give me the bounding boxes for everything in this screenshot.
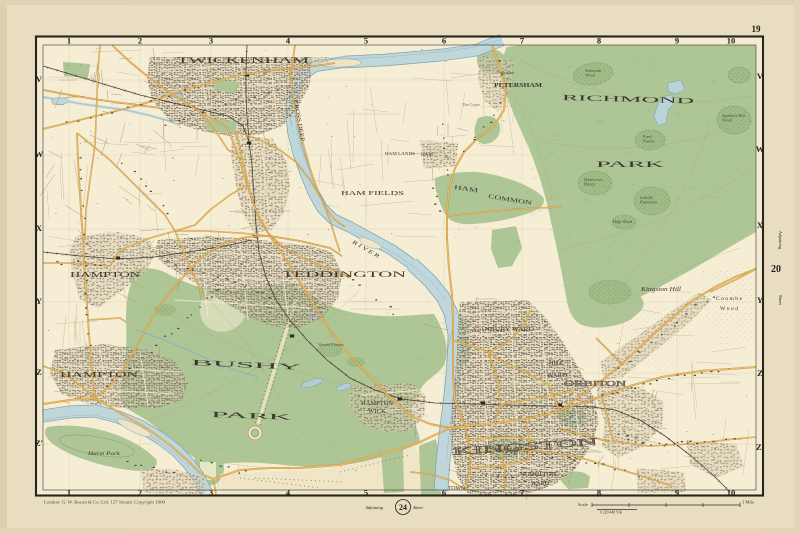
svg-text:Sheet: Sheet xyxy=(778,295,783,306)
svg-text:0 220 440 Yds: 0 220 440 Yds xyxy=(600,511,623,515)
svg-text:2: 2 xyxy=(138,36,142,46)
svg-text:Z: Z xyxy=(36,367,42,377)
svg-text:Z′: Z′ xyxy=(35,438,43,448)
svg-text:8: 8 xyxy=(597,36,601,46)
svg-text:6: 6 xyxy=(442,488,446,498)
svg-text:8: 8 xyxy=(597,488,601,498)
svg-text:X: X xyxy=(36,223,43,233)
svg-text:9: 9 xyxy=(675,36,679,46)
svg-text:5: 5 xyxy=(364,488,368,498)
svg-text:London: G. W. Bacon & Co. Ltd.: London: G. W. Bacon & Co. Ltd. 127 Stran… xyxy=(44,500,165,505)
svg-text:19: 19 xyxy=(752,24,762,34)
svg-text:Adjoining: Adjoining xyxy=(364,505,383,510)
svg-text:2: 2 xyxy=(138,488,142,498)
svg-text:5: 5 xyxy=(364,36,368,46)
svg-text:10: 10 xyxy=(727,488,736,498)
svg-text:20: 20 xyxy=(771,264,781,275)
svg-text:24: 24 xyxy=(399,503,407,512)
svg-text:Y: Y xyxy=(757,295,763,305)
svg-text:W: W xyxy=(756,144,765,154)
svg-text:V: V xyxy=(36,74,43,84)
svg-text:Scale: Scale xyxy=(578,502,588,507)
svg-text:W: W xyxy=(35,149,44,159)
svg-text:X: X xyxy=(757,220,764,230)
svg-text:9: 9 xyxy=(675,488,679,498)
svg-text:Z: Z xyxy=(757,368,763,378)
svg-text:3: 3 xyxy=(209,36,213,46)
svg-text:V: V xyxy=(757,71,764,81)
svg-text:Y: Y xyxy=(36,296,42,306)
svg-text:1 Mile: 1 Mile xyxy=(742,500,754,505)
svg-text:Adjoining: Adjoining xyxy=(778,231,783,250)
svg-text:1: 1 xyxy=(67,488,71,498)
svg-text:10: 10 xyxy=(727,36,736,46)
svg-text:6: 6 xyxy=(442,36,446,46)
svg-text:Z′: Z′ xyxy=(756,442,764,452)
svg-text:1: 1 xyxy=(67,36,71,46)
svg-text:3: 3 xyxy=(209,488,213,498)
svg-text:Sheet: Sheet xyxy=(413,505,423,510)
